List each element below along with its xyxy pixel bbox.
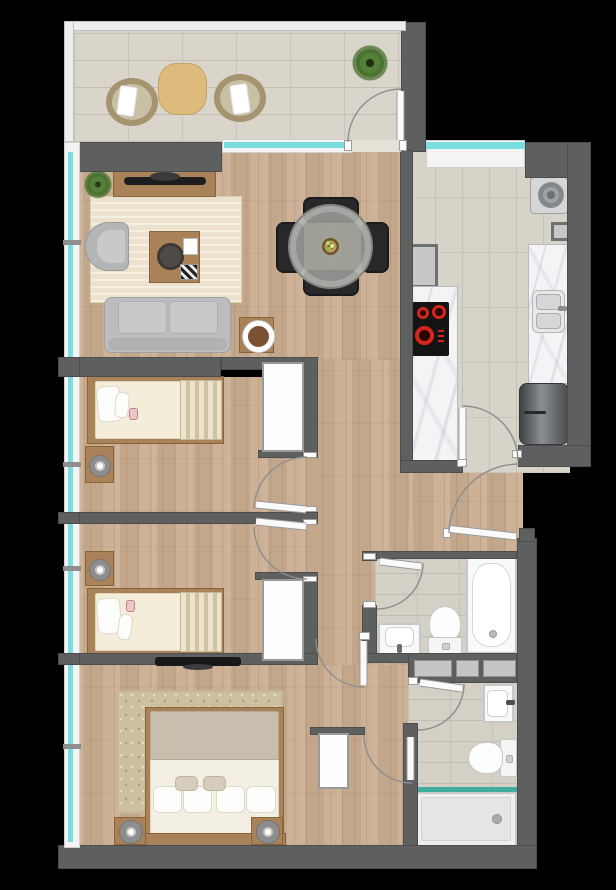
refrigerator xyxy=(519,383,569,445)
bedroom2-wardrobe xyxy=(262,579,304,661)
wall-balcony-right xyxy=(401,22,426,152)
living-plant xyxy=(84,170,112,199)
coffee-table-magazine xyxy=(180,264,198,280)
refrigerator-handle xyxy=(524,411,546,414)
toilet1-bowl xyxy=(429,606,461,641)
shaft-box-1 xyxy=(414,660,452,677)
kitchen-door-frame-left xyxy=(457,459,467,467)
kitchen-duct-box xyxy=(410,244,438,288)
wall-bathroom1-north xyxy=(362,551,517,559)
bedroom2-runner xyxy=(180,592,222,652)
wall-west-junction-2 xyxy=(58,512,80,524)
bathroom2-faucet xyxy=(506,700,515,705)
washing-machine-drum xyxy=(538,182,564,208)
bedroom2-door-frame-top xyxy=(303,519,317,525)
wall-west-junction-1 xyxy=(58,357,80,377)
kitchen-window-glass xyxy=(426,142,525,149)
kitchen-faucet xyxy=(558,306,567,311)
bathroom1-door-frame-bottom xyxy=(363,601,376,608)
balcony-door-frame-right xyxy=(399,140,407,151)
hob-controls xyxy=(438,328,444,342)
wall-bedroom1-north xyxy=(65,357,221,377)
bedroom1-wardrobe xyxy=(262,362,304,452)
master-cushion-2 xyxy=(203,776,226,791)
west-window-glass xyxy=(68,152,73,842)
master-pillow-4 xyxy=(246,786,276,813)
shaft-box-2 xyxy=(456,660,479,677)
bathtub-drain xyxy=(489,630,497,638)
master-lamp-right xyxy=(256,820,280,844)
shaft-box-3 xyxy=(483,660,516,677)
coffee-table-book xyxy=(183,238,198,255)
hob-burner-1 xyxy=(417,307,429,319)
wall-east-bathrooms xyxy=(517,538,537,868)
toilet2-flush-button xyxy=(506,755,513,763)
kitchen-sink-bowl-bottom xyxy=(536,313,561,329)
side-table-bowl xyxy=(243,321,274,352)
wall-living-north xyxy=(65,142,222,172)
entrance-door-frame xyxy=(443,528,451,538)
sofa-cushion-right xyxy=(169,301,218,334)
master-lamp-left xyxy=(119,820,143,844)
hallway-floor xyxy=(310,360,413,530)
bedroom1-runner xyxy=(180,380,222,440)
wall-bedroom1-south xyxy=(65,512,318,524)
balcony-railing-left xyxy=(64,21,74,142)
balcony-door-frame-left xyxy=(344,140,352,151)
toilet2-bowl xyxy=(468,742,503,774)
bathroom1-door-frame-top xyxy=(363,553,376,560)
bedroom1-door-frame-bottom xyxy=(303,506,317,512)
kitchen-door-frame-right xyxy=(512,450,522,458)
balcony-table xyxy=(158,63,207,115)
west-window-mullion-4 xyxy=(63,744,81,749)
master-tv-stand xyxy=(183,664,213,670)
dining-centerpiece-fruit xyxy=(326,241,330,245)
master-wardrobe xyxy=(318,733,349,789)
west-window-mullion-1 xyxy=(63,240,81,245)
balcony-window-glass xyxy=(224,142,350,148)
master-cushion-1 xyxy=(175,776,198,791)
wall-entry-hinge-block xyxy=(519,528,535,542)
bedroom1-lamp xyxy=(89,455,111,477)
wall-kitchen-south-right xyxy=(518,445,591,467)
wall-kitchen-west xyxy=(400,150,413,473)
corridor-door-frame xyxy=(359,632,370,640)
bedroom2-toy xyxy=(126,600,135,612)
dining-centerpiece xyxy=(322,238,339,255)
living-armchair-seat xyxy=(97,230,125,263)
hob-burner-3 xyxy=(415,326,434,345)
balcony-plant xyxy=(350,45,390,81)
wall-west-junction-3 xyxy=(58,653,80,665)
west-window-mullion-3 xyxy=(63,566,81,571)
bathroom1-faucet xyxy=(397,644,402,653)
wall-kitchen-east xyxy=(567,142,591,467)
bedroom2-lamp xyxy=(89,559,111,581)
wall-bathroom2-west xyxy=(403,723,418,847)
master-throw-blanket xyxy=(150,711,279,760)
balcony-railing-top xyxy=(64,21,406,31)
bedroom1-toy xyxy=(129,408,138,420)
tv-mount xyxy=(150,172,180,181)
bedroom2-door-frame-bottom xyxy=(303,576,317,582)
wall-closet1-east xyxy=(303,357,318,458)
bathroom2-door-frame xyxy=(408,677,418,685)
wall-bathroom1-south xyxy=(362,653,412,663)
shower-drain xyxy=(492,814,502,824)
hob-burner-2 xyxy=(432,305,446,319)
sofa-cushion-left xyxy=(118,301,167,334)
wall-kitchen-south-left xyxy=(400,460,463,473)
wall-south-exterior xyxy=(58,845,537,869)
bedroom1-door-frame-top xyxy=(303,452,317,458)
balcony-door-threshold xyxy=(349,140,401,152)
toilet1-flush-button xyxy=(442,643,450,650)
floor-plan xyxy=(0,0,616,890)
west-window-mullion-2 xyxy=(63,462,81,467)
sofa-backrest xyxy=(108,338,227,350)
entry-floor xyxy=(408,467,523,555)
bathroom2-sink-basin xyxy=(487,690,508,717)
